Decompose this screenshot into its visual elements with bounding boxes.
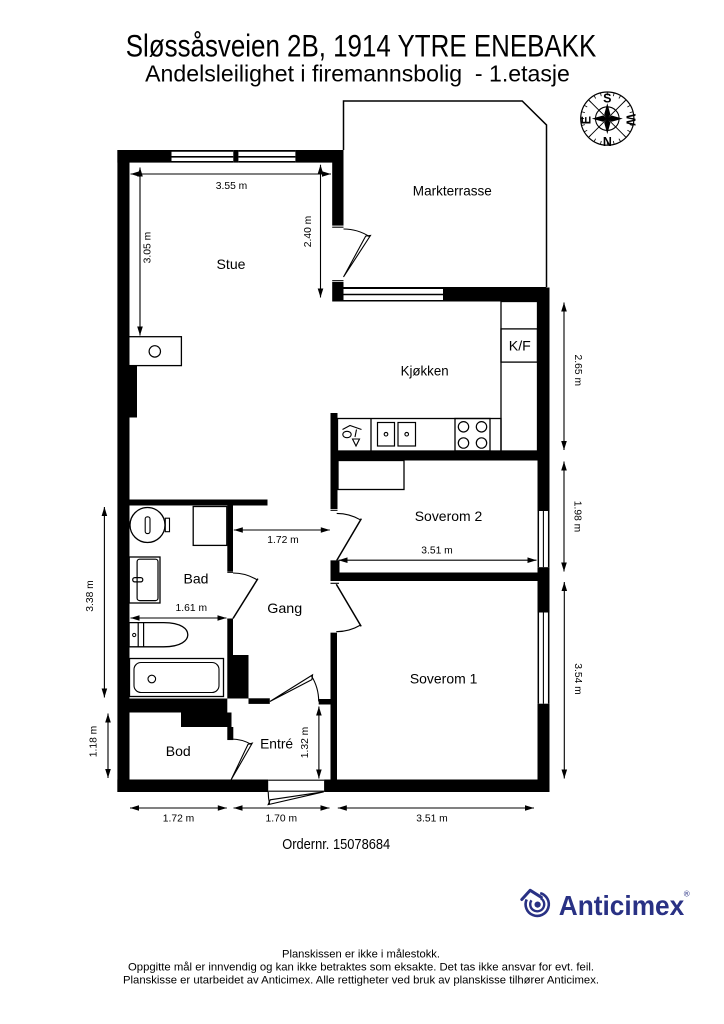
svg-text:3.51 m: 3.51 m	[421, 546, 453, 557]
svg-text:3.51 m: 3.51 m	[416, 814, 448, 825]
svg-text:Bod: Bod	[166, 743, 191, 759]
svg-text:®: ®	[684, 890, 690, 899]
svg-text:Ordernr. 15078684: Ordernr. 15078684	[282, 837, 390, 853]
svg-text:1.72 m: 1.72 m	[267, 535, 299, 546]
svg-text:1.98 m: 1.98 m	[572, 501, 583, 533]
svg-text:W: W	[623, 114, 637, 126]
svg-text:Gang: Gang	[267, 600, 302, 616]
svg-text:Markterrasse: Markterrasse	[413, 183, 492, 199]
svg-text:N: N	[603, 134, 612, 148]
svg-text:K/F: K/F	[509, 338, 531, 354]
svg-text:1.70 m: 1.70 m	[266, 814, 298, 825]
svg-text:Planskisse er utarbeidet av An: Planskisse er utarbeidet av Anticimex. A…	[123, 974, 599, 986]
svg-text:2.40 m: 2.40 m	[303, 216, 314, 248]
svg-text:Andelsleilighet i firemannsbol: Andelsleilighet i firemannsbolig - 1.eta…	[145, 60, 570, 86]
svg-text:Soverom 1: Soverom 1	[410, 671, 478, 687]
svg-text:2.65 m: 2.65 m	[572, 355, 583, 387]
svg-text:1.72 m: 1.72 m	[163, 814, 195, 825]
svg-text:S: S	[603, 91, 611, 105]
svg-text:Planskissen er ikke i målestok: Planskissen er ikke i målestokk.	[282, 949, 440, 961]
svg-text:3.55 m: 3.55 m	[216, 181, 248, 192]
svg-text:Sløssåsveien 2B, 1914 YTRE ENE: Sløssåsveien 2B, 1914 YTRE ENEBAKK	[126, 28, 597, 64]
svg-text:1.18 m: 1.18 m	[89, 726, 100, 758]
svg-text:1.61 m: 1.61 m	[176, 603, 208, 614]
svg-text:Soverom 2: Soverom 2	[415, 508, 483, 524]
svg-text:Bad: Bad	[184, 571, 209, 587]
svg-text:Oppgitte mål er innvendig og k: Oppgitte mål er innvendig og kan ikke be…	[128, 961, 594, 973]
svg-text:1.32 m: 1.32 m	[300, 727, 311, 759]
svg-text:E: E	[579, 116, 593, 124]
svg-text:Kjøkken: Kjøkken	[401, 363, 449, 379]
svg-text:3.05 m: 3.05 m	[142, 232, 153, 264]
svg-text:3.54 m: 3.54 m	[572, 663, 583, 695]
svg-text:Anticimex: Anticimex	[559, 890, 685, 921]
svg-text:3.38 m: 3.38 m	[85, 580, 96, 612]
svg-text:Stue: Stue	[217, 256, 246, 272]
svg-text:Entré: Entré	[260, 736, 293, 752]
